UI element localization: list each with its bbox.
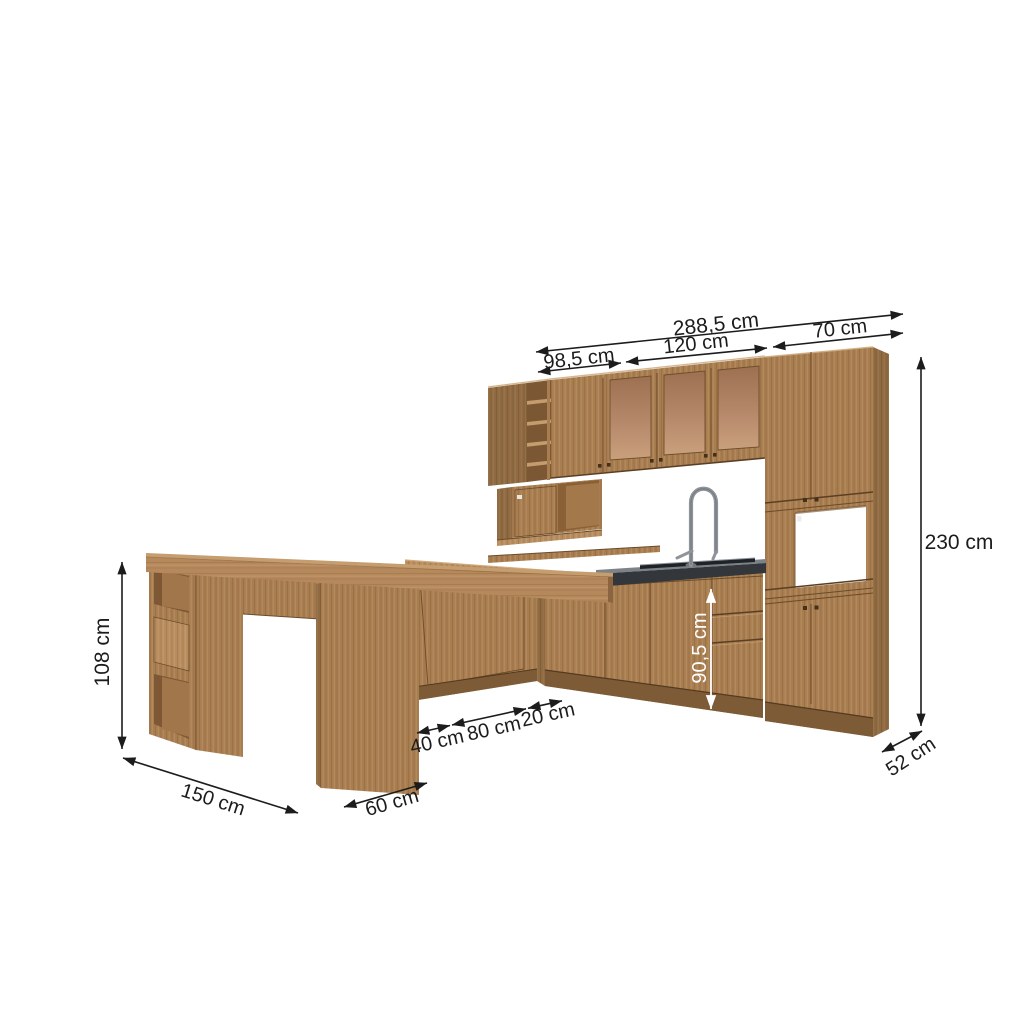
glass-pane — [664, 371, 705, 455]
corner-wall-cabinet — [488, 380, 551, 486]
countertop — [596, 489, 766, 587]
kitchen-dimension-diagram: 288,5 cm 70 cm 120 cm 98,5 cm 230 cm 52 … — [0, 0, 1024, 1024]
dim-tower-width: 70 cm — [773, 315, 903, 347]
microwave-niche — [795, 506, 866, 588]
glass-pane — [610, 376, 651, 460]
tall-tower-cabinet — [765, 347, 889, 737]
dim-seg-80-label: 80 cm — [465, 712, 523, 745]
dim-tower-depth-label: 52 cm — [882, 733, 940, 781]
niche-hinge — [797, 516, 802, 522]
table-leg-panel — [316, 583, 419, 795]
table-shelf-unit — [149, 561, 243, 757]
door-knob — [815, 606, 819, 610]
door-knob — [815, 498, 819, 502]
dim-table-length: 150 cm — [123, 758, 298, 820]
backsplash-rail — [488, 546, 660, 563]
door-knob — [659, 458, 663, 462]
dim-tower-depth: 52 cm — [882, 731, 940, 781]
door-knob — [598, 464, 602, 468]
door-hinge — [517, 495, 522, 499]
door-knob — [803, 498, 807, 502]
faucet — [677, 489, 716, 567]
dim-seg-20: 20 cm — [519, 698, 577, 731]
door-knob — [713, 453, 717, 457]
shelf-middle-panel — [154, 617, 189, 671]
dim-total-height-label: 230 cm — [925, 531, 994, 554]
dim-upper-center-width-label: 120 cm — [662, 330, 730, 359]
diagram-canvas: 288,5 cm 70 cm 120 cm 98,5 cm 230 cm 52 … — [0, 0, 1024, 1024]
glass-pane — [718, 366, 759, 450]
dim-tower-width-label: 70 cm — [812, 315, 869, 343]
door-knob — [650, 459, 654, 463]
door-knob — [803, 606, 807, 610]
dim-upper-left-width-label: 98,5 cm — [542, 344, 615, 374]
dim-total-height: 230 cm — [921, 357, 993, 726]
table-apron — [243, 578, 320, 619]
upper-wall-cabinets — [488, 356, 765, 486]
door-knob — [607, 463, 611, 467]
dim-upper-center-width: 120 cm — [626, 330, 767, 362]
wall-shelf-door — [515, 486, 556, 537]
wall-shelf-unit — [497, 479, 602, 546]
dim-table-height-label: 108 cm — [91, 618, 114, 687]
tower-side-panel — [873, 347, 889, 737]
dim-table-height: 108 cm — [91, 562, 122, 749]
dim-upper-left-width: 98,5 cm — [538, 344, 621, 374]
door-knob — [704, 454, 708, 458]
dim-counter-height-label: 90,5 cm — [689, 612, 711, 683]
table-shelf-front — [196, 574, 243, 757]
dim-seg-20-label: 20 cm — [519, 698, 577, 731]
